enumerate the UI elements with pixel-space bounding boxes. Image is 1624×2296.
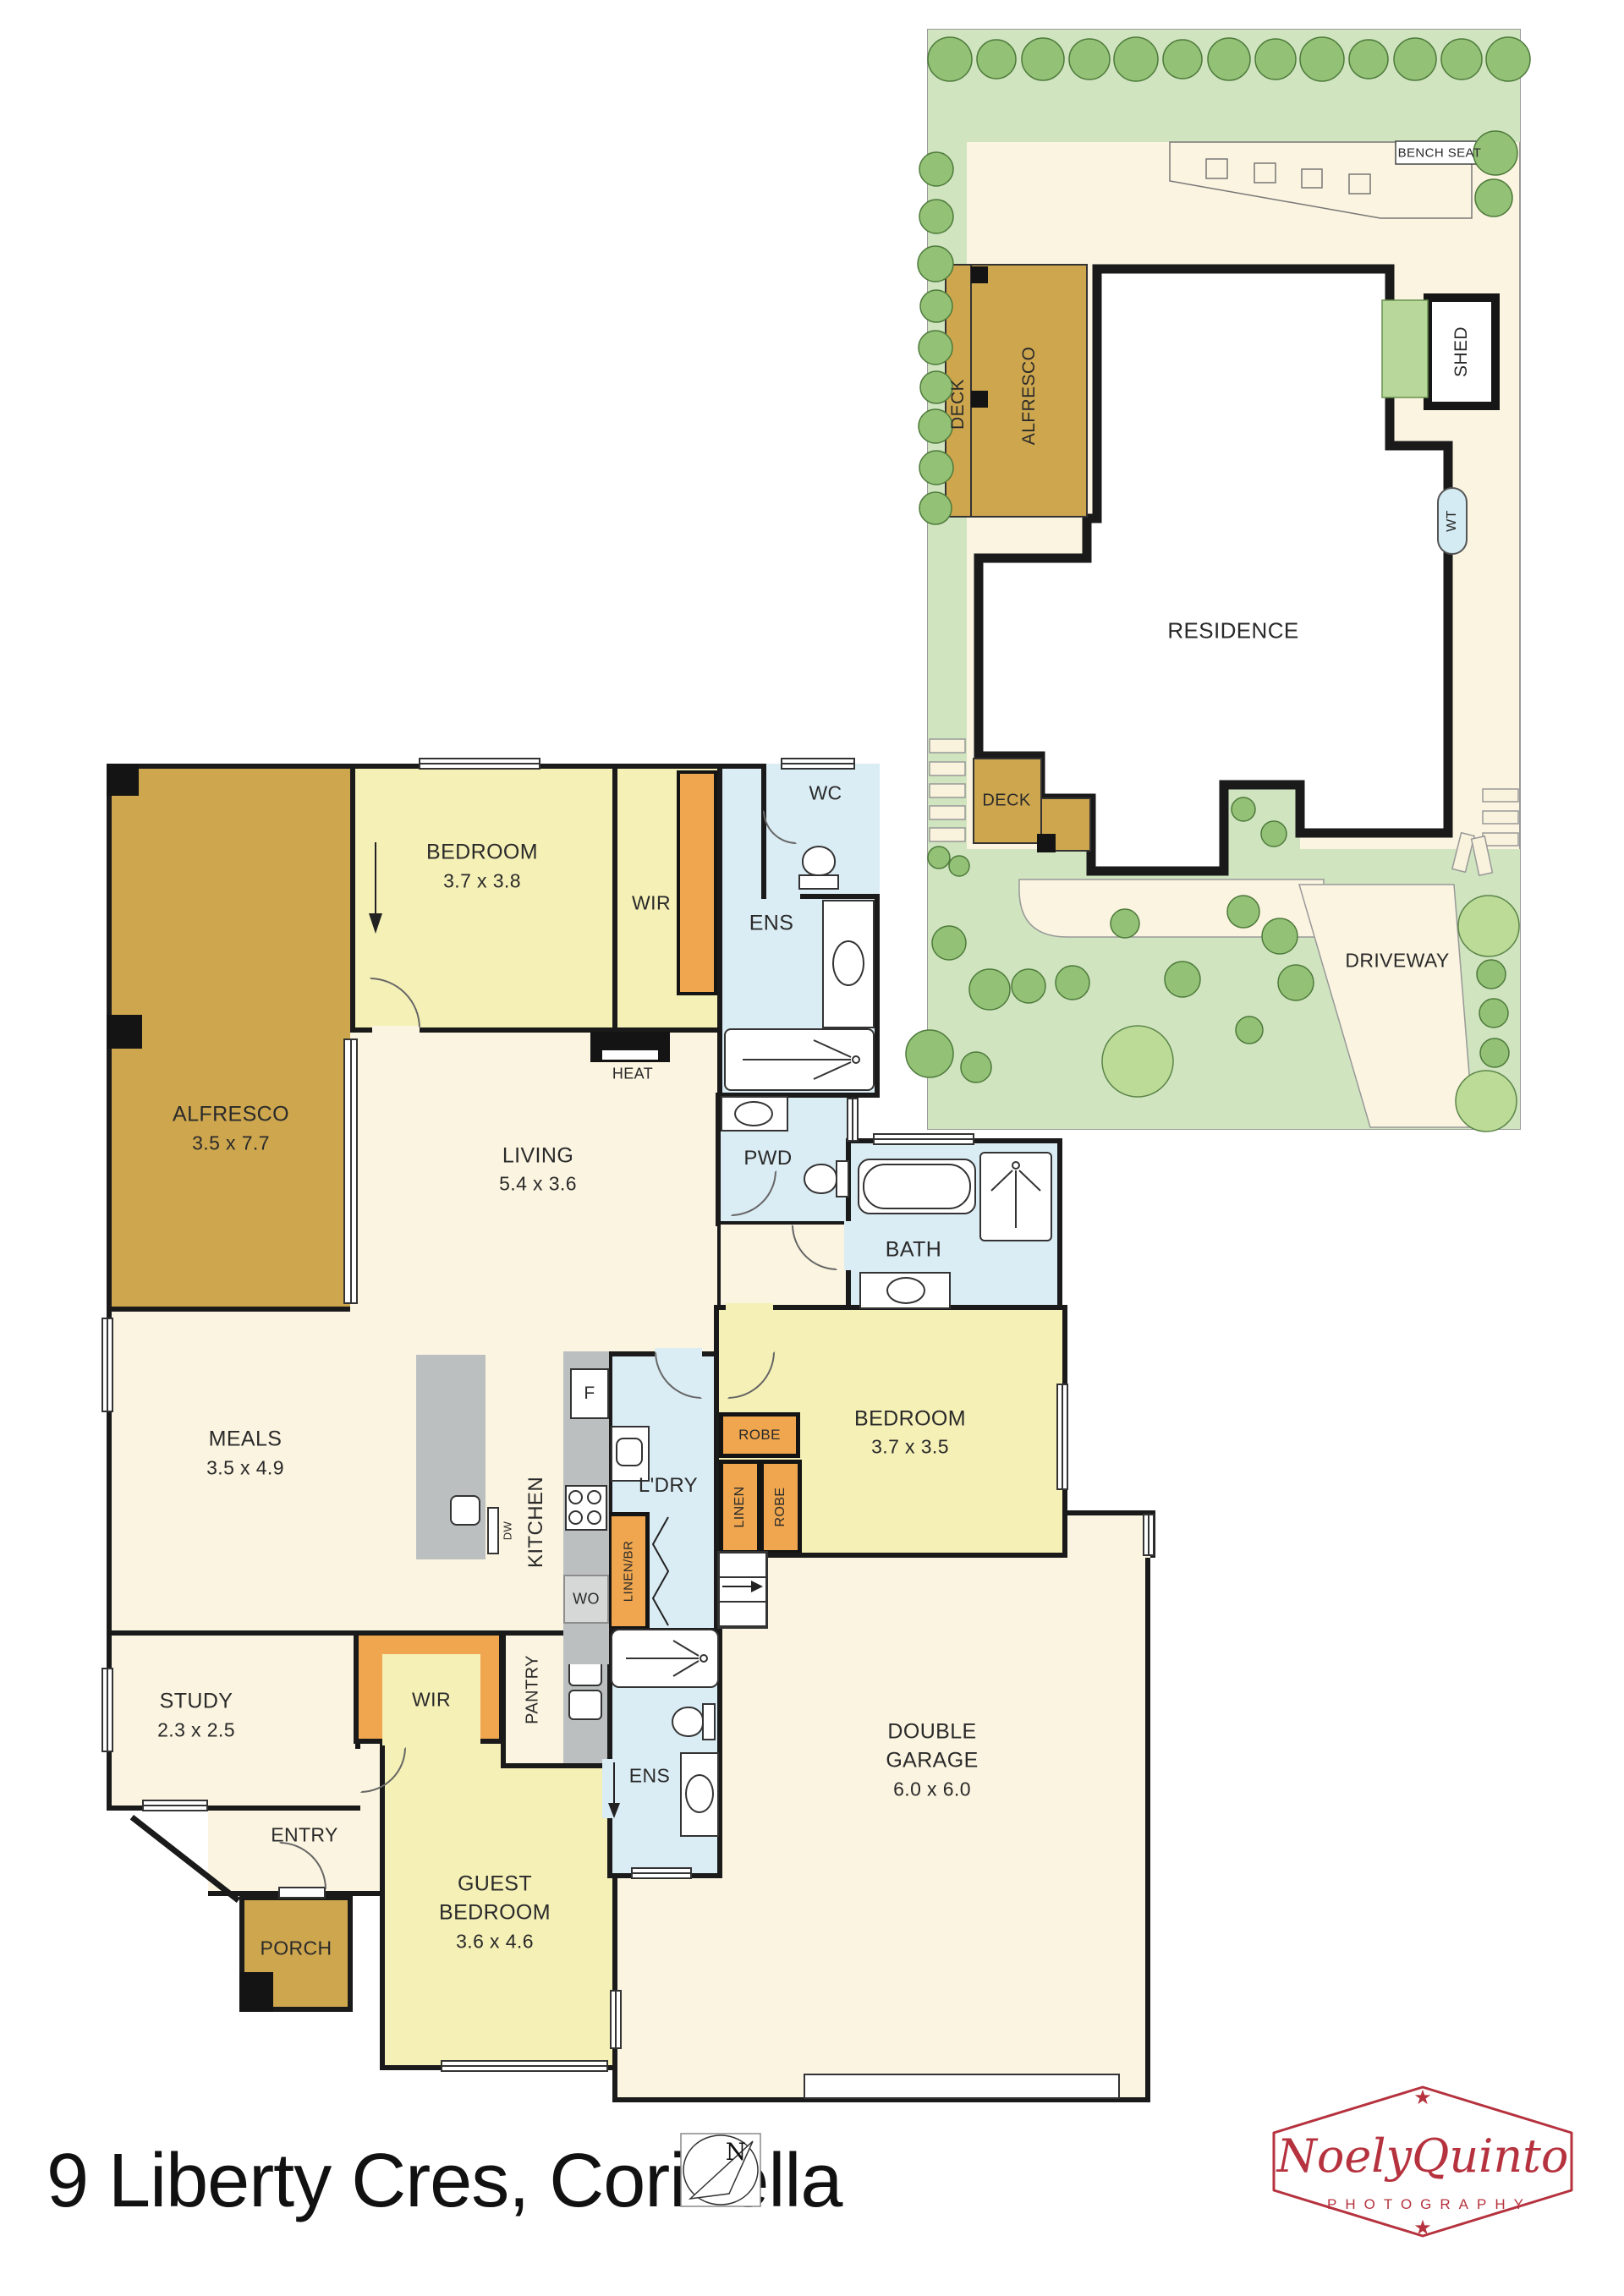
toilet-tank bbox=[702, 1703, 716, 1740]
burner-icon bbox=[568, 1510, 583, 1525]
study-dims: 2.3 x 2.5 bbox=[157, 1719, 235, 1742]
sink-icon bbox=[450, 1495, 480, 1526]
shower-head-icon bbox=[732, 1037, 866, 1082]
site-alfresco-label: ALFRESCO bbox=[1019, 347, 1040, 445]
logo-script-text: NoelyQuinto bbox=[1276, 2129, 1569, 2183]
window bbox=[419, 758, 540, 770]
driveway-label: DRIVEWAY bbox=[1345, 950, 1449, 973]
compass-north-letter: N bbox=[726, 2138, 747, 2166]
window bbox=[847, 1098, 859, 1142]
burner-icon bbox=[587, 1510, 601, 1525]
bifold-door-icon bbox=[650, 1515, 672, 1627]
linen-br-label: LINEN/BR bbox=[622, 1541, 636, 1602]
wir1-robe-bar bbox=[677, 770, 717, 995]
site-deck-upper-label: DECK bbox=[948, 379, 968, 430]
ens2-label: ENS bbox=[629, 1765, 671, 1788]
shower-head-icon bbox=[617, 1636, 712, 1681]
alfresco-post bbox=[107, 764, 139, 796]
wc-label: WC bbox=[809, 782, 842, 805]
alfresco-label: ALFRESCO bbox=[173, 1103, 289, 1127]
door-gap bbox=[844, 1221, 854, 1270]
laundry-label: L'DRY bbox=[639, 1474, 698, 1498]
robe-top-label: ROBE bbox=[738, 1427, 781, 1444]
logo-star-top: ★ bbox=[1413, 2086, 1432, 2109]
bath-basin-icon bbox=[886, 1277, 925, 1304]
site-deck-lower-label: DECK bbox=[982, 792, 1030, 811]
ens1-label: ENS bbox=[749, 912, 794, 936]
meals-dims: 3.5 x 4.9 bbox=[206, 1457, 284, 1480]
basin-icon bbox=[685, 1774, 714, 1813]
bench-seat-label: BENCH SEAT bbox=[1398, 146, 1482, 161]
porch-label: PORCH bbox=[260, 1937, 332, 1960]
bath-label: BATH bbox=[886, 1238, 941, 1263]
shower-head-icon bbox=[986, 1159, 1045, 1235]
guest-bedroom-label-2: BEDROOM bbox=[439, 1901, 551, 1926]
window bbox=[101, 1668, 113, 1752]
sliding-door bbox=[343, 1038, 358, 1304]
meals-label: MEALS bbox=[209, 1427, 283, 1452]
bedroom1-label: BEDROOM bbox=[426, 841, 538, 865]
heat-label: HEAT bbox=[612, 1066, 653, 1083]
wir1-label: WIR bbox=[632, 892, 671, 915]
bedroom2-dims: 3.7 x 3.5 bbox=[871, 1436, 949, 1459]
basin-icon bbox=[832, 940, 864, 986]
linen-label: LINEN bbox=[732, 1486, 748, 1527]
dishwasher-icon bbox=[487, 1507, 499, 1554]
photographer-logo: ★ ★ NoelyQuinto PHOTOGRAPHY bbox=[1267, 2080, 1578, 2243]
toilet-icon bbox=[802, 846, 836, 876]
entry-arrow-icon bbox=[365, 839, 386, 937]
porch-post bbox=[239, 1972, 273, 2012]
door-gap bbox=[726, 1303, 773, 1313]
study-label: STUDY bbox=[160, 1690, 233, 1714]
window bbox=[873, 1133, 974, 1145]
pwd-basin-icon bbox=[734, 1101, 773, 1126]
toilet-icon bbox=[804, 1164, 837, 1194]
garage-left-extension bbox=[612, 1878, 722, 2102]
logo-subtitle-text: PHOTOGRAPHY bbox=[1327, 2196, 1532, 2212]
guest-bedroom-label-1: GUEST bbox=[458, 1872, 532, 1897]
window bbox=[142, 1800, 208, 1811]
pwd-label: PWD bbox=[743, 1147, 792, 1170]
garage-nook bbox=[1062, 1510, 1155, 1558]
dishwasher-label: DW bbox=[502, 1521, 514, 1540]
garage-dims: 6.0 x 6.0 bbox=[893, 1778, 971, 1801]
kitchen-label: KITCHEN bbox=[524, 1477, 548, 1568]
kitchen-island bbox=[416, 1355, 486, 1559]
living-label: LIVING bbox=[502, 1144, 573, 1169]
toilet-tank bbox=[798, 874, 839, 890]
wir2-opening bbox=[382, 1732, 480, 1745]
window bbox=[1056, 1384, 1068, 1490]
guest-bedroom-dims: 3.6 x 4.6 bbox=[456, 1931, 534, 1954]
residence-label: RESIDENCE bbox=[1167, 618, 1298, 644]
pantry-shelf bbox=[568, 1690, 602, 1720]
window bbox=[101, 1318, 113, 1412]
slider-arrow-icon bbox=[606, 1761, 623, 1820]
robe-side-label: ROBE bbox=[773, 1488, 788, 1527]
garage-label-2: GARAGE bbox=[886, 1749, 978, 1773]
pantry-label: PANTRY bbox=[524, 1655, 543, 1724]
logo-star-bottom: ★ bbox=[1413, 2217, 1432, 2239]
garage-door bbox=[804, 2074, 1120, 2099]
water-tank-label: WT bbox=[1445, 510, 1460, 532]
alfresco-post bbox=[107, 1015, 142, 1049]
window bbox=[781, 758, 855, 770]
floorplan-page: { "title": "9 Liberty Cres, Corinella", … bbox=[0, 0, 1624, 2296]
bathtub-inner bbox=[863, 1164, 971, 1209]
wir2-label: WIR bbox=[412, 1689, 451, 1712]
garden-bed bbox=[1382, 300, 1428, 397]
room-alfresco bbox=[107, 764, 355, 1312]
window bbox=[441, 2060, 608, 2072]
toilet-icon bbox=[672, 1707, 704, 1737]
window bbox=[631, 1867, 692, 1879]
toilet-tank bbox=[836, 1160, 849, 1197]
entry-label: ENTRY bbox=[271, 1824, 338, 1847]
bedroom2-label: BEDROOM bbox=[854, 1407, 966, 1432]
laundry-trough-icon bbox=[616, 1438, 643, 1466]
steps-arrow-icon bbox=[721, 1578, 765, 1595]
heater-slot bbox=[602, 1050, 658, 1060]
shed-label: SHED bbox=[1451, 326, 1472, 377]
north-compass: N bbox=[680, 2133, 761, 2207]
door-gap bbox=[766, 890, 800, 901]
alfresco-dims: 3.5 x 7.7 bbox=[192, 1132, 270, 1155]
window bbox=[1143, 1514, 1155, 1556]
bedroom1-dims: 3.7 x 3.8 bbox=[443, 870, 521, 893]
burner-icon bbox=[568, 1490, 583, 1504]
room-garage bbox=[717, 1553, 1150, 2102]
burner-icon bbox=[587, 1490, 601, 1504]
fridge-label: F bbox=[584, 1384, 595, 1404]
wall-oven-label: WO bbox=[573, 1591, 600, 1608]
living-dims: 5.4 x 3.6 bbox=[499, 1173, 577, 1196]
garage-label-1: DOUBLE bbox=[887, 1720, 976, 1745]
window bbox=[610, 1990, 622, 2049]
